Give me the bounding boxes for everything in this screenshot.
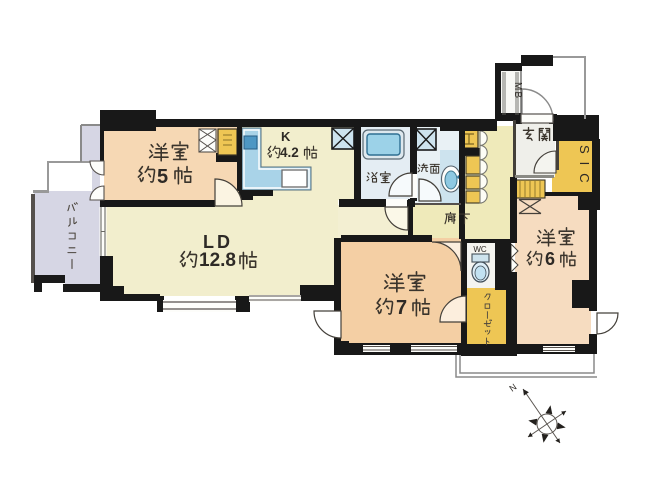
svg-text:K: K xyxy=(281,129,291,144)
svg-text:12.8: 12.8 xyxy=(199,250,236,271)
svg-text:SIC: SIC xyxy=(577,145,592,191)
svg-text:LD: LD xyxy=(203,232,233,252)
svg-text:6: 6 xyxy=(545,249,555,269)
svg-text:5: 5 xyxy=(157,166,168,188)
svg-text:4.2: 4.2 xyxy=(280,145,299,160)
svg-text:7: 7 xyxy=(396,297,407,319)
svg-text:MB: MB xyxy=(512,82,523,99)
svg-text:WC: WC xyxy=(473,245,487,254)
